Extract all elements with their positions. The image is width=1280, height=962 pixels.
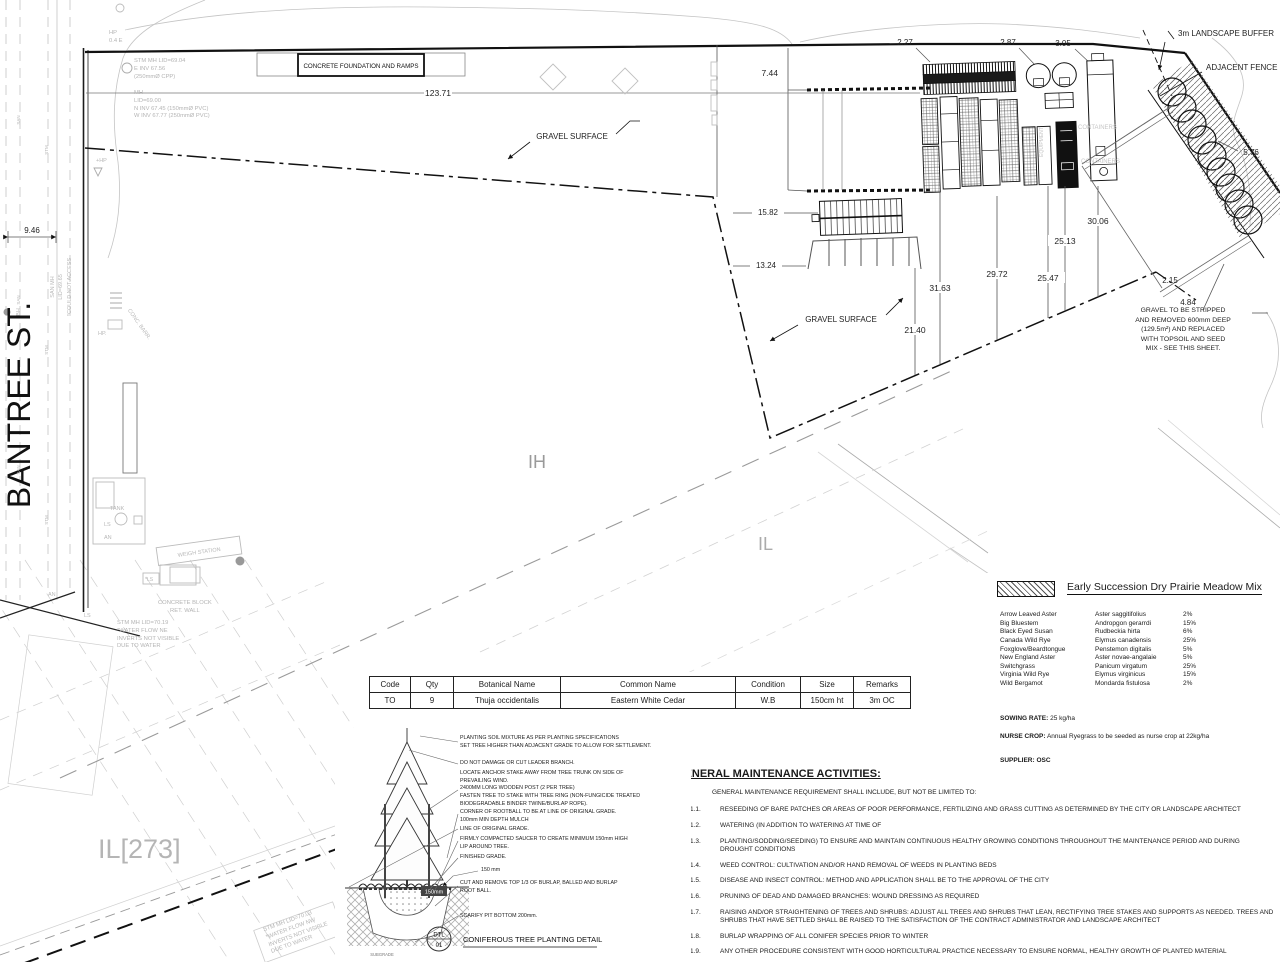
col-remarks: Remarks	[854, 677, 911, 693]
svg-text:30.06: 30.06	[1087, 216, 1109, 226]
black-container	[1056, 121, 1078, 188]
list-item: 1.3.PLANTING/SODDING/SEEDING) TO ENSURE …	[690, 838, 1278, 855]
svg-text:TANK: TANK	[110, 506, 125, 512]
cell-size: 150cm ht	[801, 693, 854, 709]
col-botanical: Botanical Name	[454, 677, 561, 693]
svg-text:AN: AN	[104, 535, 112, 541]
callout-stake: LOCATE ANCHOR STAKE AWAY FROM TREE TRUNK…	[460, 770, 688, 808]
svg-text:GRAVEL SURFACE: GRAVEL SURFACE	[536, 132, 608, 141]
nurse-crop: NURSE CROP: Annual Ryegrass to be seeded…	[1000, 733, 1240, 742]
property-line	[84, 48, 89, 612]
col-size: Size	[801, 677, 854, 693]
list-item: Canada Wild RyeElymus canadensis25%	[1000, 637, 1217, 646]
point-labels: +HP HP. TANK LS AN LS AN	[48, 158, 125, 619]
table-header-row: Code Qty Botanical Name Common Name Cond…	[370, 677, 911, 693]
list-item: 1.2.WATERING (IN ADDITION TO WATERING AT…	[690, 822, 1278, 830]
list-item: 1.9.ANY OTHER PROCEDURE CONSISTENT WITH …	[690, 948, 1278, 956]
ls-star-label: *LS	[145, 577, 154, 583]
callout-saucer: FIRMLY COMPACTED SAUCER TO CREATE MINIMU…	[460, 836, 688, 851]
svg-text:SAN: SAN	[16, 465, 21, 474]
ball-dim-label: 150mm	[425, 890, 444, 896]
svg-text:STM: STM	[44, 345, 49, 355]
subgrade-label: SUBGRADE	[370, 952, 394, 957]
cell-common: Eastern White Cedar	[561, 693, 736, 709]
svg-text:LID=69.65: LID=69.65	[58, 274, 64, 300]
zone-il-label: IL	[758, 534, 773, 554]
zone-il273-label: IL[273]	[98, 834, 181, 864]
dim-yard-width: 123.71	[86, 88, 920, 98]
zone-ih-label: IH	[528, 452, 546, 472]
svg-text:WEIGH STATION: WEIGH STATION	[177, 547, 221, 559]
list-item: Black Eyed SusanRudbeckia hirta6%	[1000, 628, 1217, 637]
gravel-area-boundary	[85, 148, 1156, 438]
svg-text:HP.: HP.	[98, 331, 107, 337]
callout-150mm: 150 mm	[481, 867, 709, 875]
plant-schedule-panel: Code Qty Botanical Name Common Name Cond…	[365, 672, 915, 713]
zone-lines	[60, 368, 990, 778]
vertical-dim-texts: 21.40 31.63 29.72 25.47 25.13 30.06	[898, 215, 1115, 335]
cell-condition: W.B	[736, 693, 801, 709]
col-code: Code	[370, 677, 411, 693]
list-item: SwitchgrassPanicum virgatum25%	[1000, 663, 1217, 672]
svg-text:DTL: DTL	[433, 933, 445, 939]
detail-title: CONIFEROUS TREE PLANTING DETAIL	[463, 935, 602, 944]
tank-circle-2	[1052, 62, 1077, 87]
callout-soil: PLANTING SOIL MIXTURE AS PER PLANTING SP…	[460, 735, 688, 750]
svg-text:STM: STM	[44, 145, 49, 155]
svg-text:SAN MH: SAN MH	[50, 276, 56, 297]
stm-mh-top-note: STM MH LID=69.04 E INV 67.56 (250mmØ CPP…	[134, 58, 185, 81]
dim-576: 5.76	[1243, 148, 1259, 157]
street-name: BANTREE ST.	[1, 302, 37, 508]
gravel-surface-label-2: GRAVEL SURFACE	[770, 298, 903, 341]
svg-text:SAN: SAN	[16, 115, 21, 124]
svg-text:9.46: 9.46	[24, 226, 40, 235]
cell-botanical: Thuja occidentalis	[454, 693, 561, 709]
list-item: 1.4.WEED CONTROL: CULTIVATION AND/OR HAN…	[690, 862, 1278, 870]
svg-text:2.87: 2.87	[1000, 38, 1016, 47]
col-common: Common Name	[561, 677, 736, 693]
col-qty: Qty	[411, 677, 454, 693]
svg-text:25.13: 25.13	[1054, 236, 1076, 246]
svg-text:3.05: 3.05	[1055, 39, 1071, 48]
dim-215: 2.15	[1162, 276, 1178, 285]
cell-remarks: 3m OC	[854, 693, 911, 709]
svg-text:15.82: 15.82	[758, 208, 779, 217]
landscape-buffer-label: 3m LANDSCAPE BUFFER	[1178, 29, 1274, 38]
svg-text:BH: BH	[16, 308, 22, 316]
list-item: 1.5.DISEASE AND INSECT CONTROL: METHOD A…	[690, 877, 1278, 885]
list-item: 1.8.BURLAP WRAPPING OF ALL CONIFER SPECI…	[690, 933, 1278, 941]
hp-04-note: HP 0.4 E	[109, 30, 123, 46]
vertical-dims	[915, 186, 1098, 375]
rack-structure	[811, 199, 902, 236]
concrete-foundation-label: CONCRETE FOUNDATION AND RAMPS	[303, 63, 418, 70]
list-item: New England AsterAster novae-angalaie5%	[1000, 654, 1217, 663]
svg-text:SAN: SAN	[16, 295, 21, 304]
list-item: 1.GENERAL MAINTENANCE REQUIREMENT SHALL …	[682, 789, 1278, 797]
containers-label-2: CONTAINERS	[1081, 159, 1120, 165]
cell-qty: 9	[411, 693, 454, 709]
sowing-rate: SOWING RATE: 25 kg/ha	[1000, 715, 1240, 724]
equipment-label: EQUIPMENT	[1039, 127, 1045, 157]
parking-comb	[808, 237, 921, 269]
callout-burlap: CUT AND REMOVE TOP 1/3 OF BURLAP, BALLED…	[460, 880, 688, 895]
dim-1582: 15.82	[733, 206, 818, 217]
svg-text:29.72: 29.72	[986, 269, 1008, 279]
svg-text:123.71: 123.71	[425, 88, 451, 98]
adjacent-fence-label: ADJACENT FENCE	[1206, 63, 1277, 72]
containers-cluster	[920, 53, 1118, 193]
table-row: TO 9 Thuja occidentalis Eastern White Ce…	[370, 693, 911, 709]
list-item: 1.7.RAISING AND/OR STRAIGHTENING OF TREE…	[690, 909, 1278, 926]
weigh-station: WEIGH STATION	[156, 536, 242, 566]
cell-code: TO	[370, 693, 411, 709]
conifer-tree	[371, 728, 443, 888]
svg-text:01: 01	[436, 943, 443, 949]
svg-text:31.63: 31.63	[929, 283, 951, 293]
callout-grade: LINE OF ORIGINAL GRADE.	[460, 826, 688, 834]
svg-text:25.47: 25.47	[1037, 273, 1059, 283]
svg-text:13.24: 13.24	[756, 261, 777, 270]
callout-leader: DO NOT DAMAGE OR CUT LEADER BRANCH.	[460, 760, 688, 768]
gravel-strip-note: GRAVEL TO BE STRIPPED AND REMOVED 600mm …	[1118, 306, 1248, 354]
callout-scarify: SCARIFY PIT BOTTOM 200mm.	[460, 913, 688, 921]
site-plan-sheet: CONCRETE FOUNDATION AND RAMPS 123.71 9.4…	[0, 0, 1280, 962]
svg-text:*COULD NOT ACCESS: *COULD NOT ACCESS	[67, 258, 73, 317]
dim-street-width: 9.46	[8, 226, 56, 243]
stm-ne-note: STM MH LID=70.19 *WATER FLOW NE INVERTS …	[117, 620, 179, 651]
svg-text:LS: LS	[84, 613, 91, 619]
list-item: Wild BergamotMondarda fistulosa2%	[1000, 680, 1217, 689]
concrete-block-note: CONCRETE BLOCK RET. WALL	[158, 600, 212, 616]
svg-text:GRAVEL SURFACE: GRAVEL SURFACE	[805, 315, 877, 324]
dim-744: 7.44	[761, 68, 778, 78]
list-item: Big BluestemAndropgon gerarrdi15%	[1000, 620, 1217, 629]
seed-mix-hatch-swatch	[997, 581, 1055, 597]
mh-top-note: MH LID=69.00 N INV 67.45 (150mmØ PVC) W …	[134, 90, 210, 121]
seed-species-list: Arrow Leaved AsterAster saggitifolius2% …	[1000, 611, 1217, 689]
maintenance-panel: GENERAL MAINTENANCE ACTIVITIES: 1.GENERA…	[672, 764, 1278, 962]
svg-text:LS: LS	[104, 522, 111, 528]
col-condition: Condition	[736, 677, 801, 693]
svg-text:CONC. BARR.: CONC. BARR.	[126, 308, 152, 341]
svg-text:AN: AN	[48, 592, 56, 598]
fenced-yard	[788, 88, 932, 191]
callout-rootball: CORNER OF ROOTBALL TO BE AT LINE OF ORIG…	[460, 809, 688, 824]
seed-mix-title: Early Succession Dry Prairie Meadow Mix	[1067, 581, 1262, 595]
callout-finished: FINISHED GRADE.	[460, 854, 688, 862]
list-item: Foxglove/BeardtonguePenstemon digitalis5…	[1000, 646, 1217, 655]
containers-label-1: CONTAINERS	[1078, 125, 1117, 131]
list-item: 1.6.PRUNING OF DEAD AND DAMAGED BRANCHES…	[690, 893, 1278, 901]
planting-detail-panel: 150mm SUBGRADE DTL 01 CONIFEROUS TREE PL…	[335, 728, 691, 962]
concrete-foundation: CONCRETE FOUNDATION AND RAMPS	[257, 53, 465, 76]
plant-schedule-table: Code Qty Botanical Name Common Name Cond…	[369, 676, 911, 709]
tank-circle-1	[1026, 63, 1051, 88]
svg-text:+HP: +HP	[96, 158, 107, 164]
maintenance-title: GENERAL MAINTENANCE ACTIVITIES:	[676, 768, 1278, 780]
list-item: Virginia Wild RyeElymus virginicus15%	[1000, 671, 1217, 680]
dim-1324: 13.24	[733, 259, 806, 270]
svg-text:STM: STM	[44, 515, 49, 525]
svg-text:21.40: 21.40	[904, 325, 926, 335]
svg-text:2.27: 2.27	[897, 38, 913, 47]
seed-mix-panel: Early Succession Dry Prairie Meadow Mix …	[985, 573, 1280, 768]
list-item: 1.1.RESEEDING OF BARE PATCHES OR AREAS O…	[690, 806, 1278, 814]
gravel-surface-label-1: GRAVEL SURFACE	[508, 121, 640, 159]
list-item: Arrow Leaved AsterAster saggitifolius2%	[1000, 611, 1217, 620]
yard-misc-shapes	[4, 4, 718, 566]
